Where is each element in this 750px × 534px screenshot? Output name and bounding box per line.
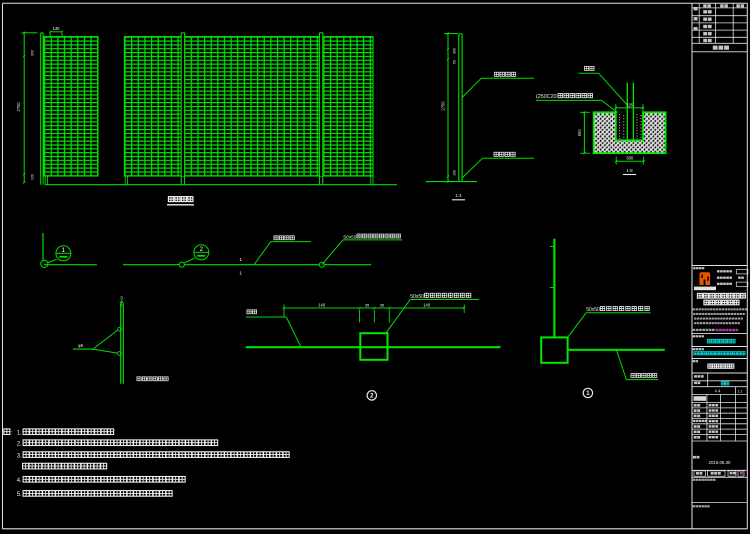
svg-text:(250C20: (250C20 xyxy=(536,94,557,100)
svg-text:2016.05.30: 2016.05.30 xyxy=(709,460,732,465)
svg-text:1: 1 xyxy=(239,271,242,276)
svg-text:35: 35 xyxy=(365,302,370,307)
svg-text:3.: 3. xyxy=(17,453,22,459)
svg-text:140: 140 xyxy=(318,302,326,307)
svg-text:5.: 5. xyxy=(17,492,22,498)
svg-text:100: 100 xyxy=(453,170,457,176)
svg-text:2: 2 xyxy=(200,246,204,253)
svg-text:300: 300 xyxy=(453,48,457,54)
svg-text:1:4: 1:4 xyxy=(455,193,462,198)
svg-text:1:1: 1:1 xyxy=(738,389,743,393)
svg-text:35: 35 xyxy=(380,302,385,307)
svg-text:1.: 1. xyxy=(17,430,22,436)
svg-text:1: 1 xyxy=(239,257,242,262)
svg-text:140: 140 xyxy=(423,302,431,307)
svg-text:4.: 4. xyxy=(17,478,22,484)
svg-text:1: 1 xyxy=(62,247,66,254)
svg-text:1:8: 1:8 xyxy=(626,168,633,173)
svg-text:50x50: 50x50 xyxy=(343,234,356,240)
svg-text:2.: 2. xyxy=(17,441,22,447)
svg-text:2700: 2700 xyxy=(16,102,21,112)
svg-text:2700: 2700 xyxy=(441,101,446,111)
svg-text:500: 500 xyxy=(626,156,634,161)
svg-text:500: 500 xyxy=(577,129,582,137)
svg-text:φ5: φ5 xyxy=(78,343,84,348)
svg-text:140: 140 xyxy=(53,26,61,31)
svg-text:4 4: 4 4 xyxy=(715,389,721,394)
svg-text:50: 50 xyxy=(453,60,457,64)
svg-text:300: 300 xyxy=(31,50,35,56)
svg-text:100: 100 xyxy=(31,174,35,180)
